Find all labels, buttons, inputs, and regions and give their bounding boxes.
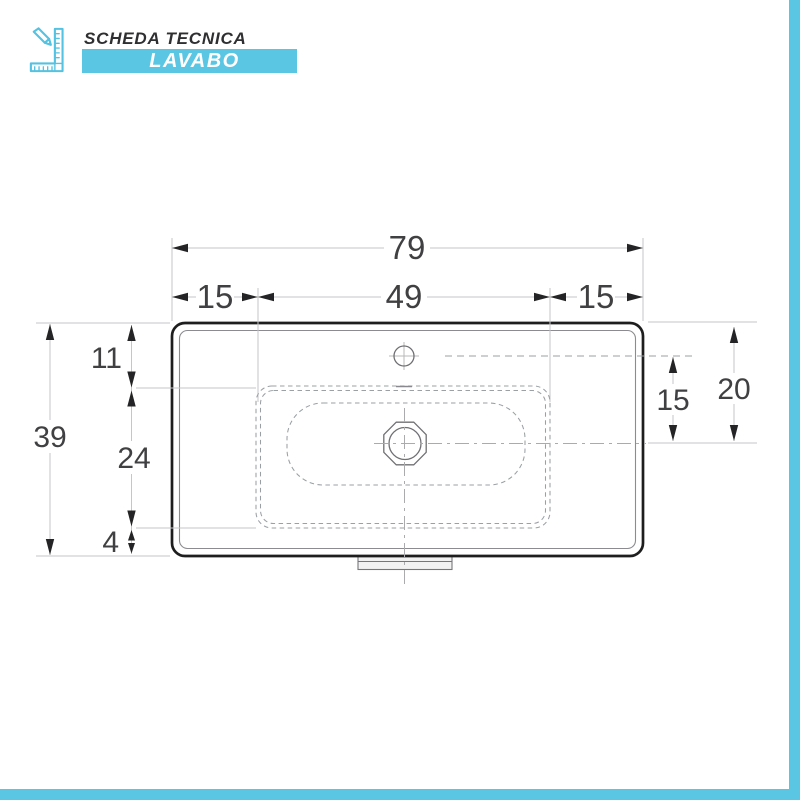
dim-edge-to-drain: 20 [717,373,750,406]
frame-bar-bottom [0,789,800,800]
dim-right-offset: 15 [578,278,615,315]
dim-left-offset: 15 [197,278,234,315]
dim-bowl-depth: 24 [117,442,150,475]
scheda-tecnica-sheet: SCHEDA TECNICA LAVABO [0,0,800,800]
dim-total-depth: 39 [33,421,66,454]
dim-bowl-width: 49 [386,278,423,315]
dim-total-width: 79 [389,229,426,266]
dim-top-to-bowl: 11 [91,342,122,375]
dim-faucet-to-drain: 15 [656,384,689,417]
basin-outer-outline [172,323,643,556]
washbasin-technical-drawing: 79 15 49 15 39 11 24 4 15 20 [0,0,800,800]
dim-bowl-to-bottom: 4 [102,526,119,559]
frame-bar-right [789,0,800,800]
